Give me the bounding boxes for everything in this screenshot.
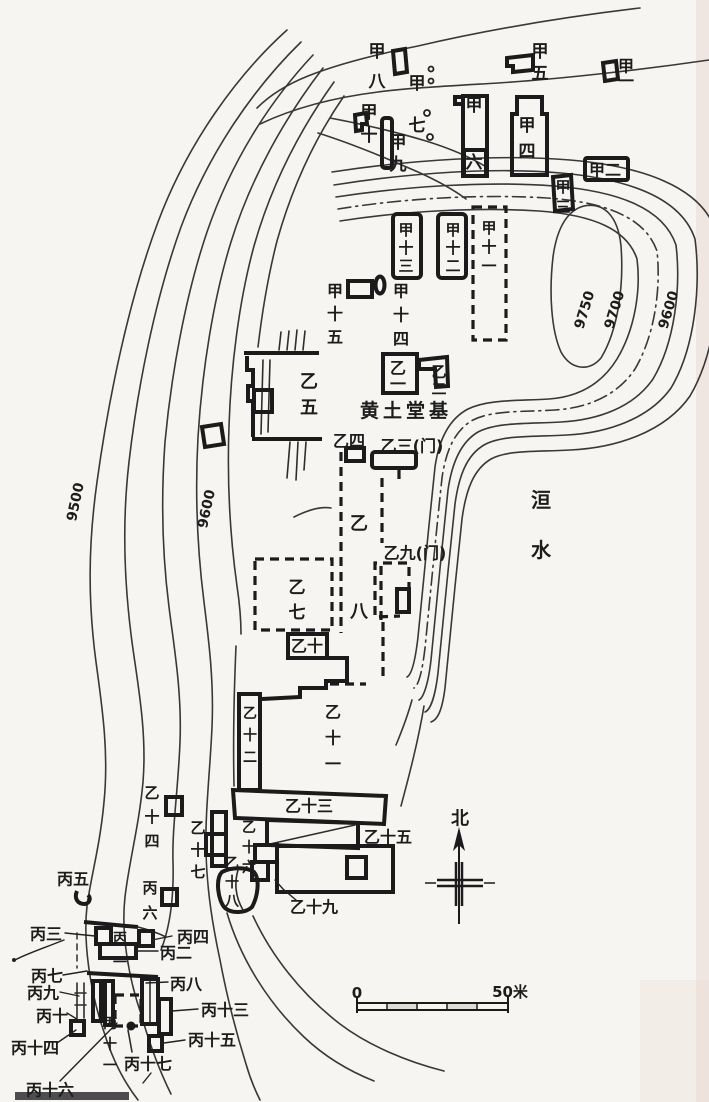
hatch-below-yi5 [287, 442, 306, 480]
pit-circle-4 [427, 134, 433, 140]
core-label: 黄土堂基 [360, 399, 452, 422]
building-jia-8 [393, 49, 407, 74]
yi-17-label: 乙十七 [190, 819, 205, 881]
yi-19-label: 乙十九 [290, 898, 338, 917]
pit-circle-1 [429, 67, 434, 72]
yi-12-label: 乙十二 [243, 706, 257, 766]
bing-17-label: 丙十七 [124, 1055, 172, 1074]
yi-3-label: 乙三(门) [381, 437, 444, 456]
jia-6-label: 甲六 [466, 96, 483, 173]
bing-8-label: 丙八 [170, 975, 203, 994]
bing-15-label: 丙十五 [188, 1031, 236, 1050]
building-south-hall [277, 846, 393, 892]
yi-10-label: 乙十 [291, 637, 323, 656]
building-connector-1 [255, 845, 277, 862]
river-label: 洹水 [531, 488, 552, 562]
mid-arc [294, 508, 331, 517]
contour-line-left-5b [234, 646, 236, 786]
building-yi-9-solid [397, 589, 409, 612]
scan-tint-corner [640, 980, 709, 1102]
bing-6-label: 丙六 [142, 879, 157, 922]
contour-9700-label: 9700 [602, 289, 629, 331]
scale-start-label: 0 [352, 984, 362, 1002]
yi-8-label: 乙八 [350, 514, 369, 623]
building-yi-15-diagonal [270, 825, 355, 844]
scale-bar [357, 997, 508, 1013]
yi-16-label: 乙十六 [242, 820, 256, 876]
building-jia-1 [603, 61, 618, 81]
leader-bing-7 [63, 971, 87, 975]
scale-bar-segment-fill-1 [387, 1004, 417, 1009]
jia-1-label: 甲一 [618, 57, 634, 91]
bing-link-line [128, 1030, 132, 1052]
contour-9500-label: 9500 [64, 481, 88, 523]
yi-9-label: 乙九(门) [384, 544, 447, 563]
contour-9600-east-label: 9600 [656, 289, 683, 331]
yi-1-label: 乙一 [390, 359, 406, 394]
scale-bar-segment-fill-2 [447, 1004, 477, 1009]
scale-bar-outline [357, 1003, 508, 1010]
jia-11-label: 甲十一 [481, 219, 496, 275]
yi-15-label: 乙十五 [364, 828, 412, 847]
leader-bing-17 [143, 1073, 151, 1083]
bing-1-label: 丙一 [113, 931, 127, 971]
bing-11-label: 丙十一 [103, 1016, 117, 1074]
yi-11-label: 乙十一 [325, 703, 341, 774]
bing-5-label: 丙五 [57, 870, 89, 889]
leader-bing-13 [172, 1009, 198, 1011]
bing-9-label: 丙九 [27, 984, 59, 1003]
jia-8-label: 甲八 [369, 42, 387, 92]
building-yi-17-square [206, 834, 226, 855]
building-bing-4-square [139, 931, 153, 946]
bottom-curve-2 [253, 916, 444, 1071]
terrace-line-top-1 [257, 8, 640, 108]
yi-2-label: 乙二 [431, 363, 446, 398]
contour-9750-label: 9750 [572, 289, 599, 331]
bing-16-label: 丙十六 [26, 1081, 74, 1100]
compass [425, 827, 495, 924]
north-label: 北 [451, 809, 469, 830]
yi-14-label: 乙十四 [144, 784, 159, 850]
jia-2-label: 甲二 [589, 161, 621, 180]
building-yi-14-square [166, 797, 182, 815]
hatch-inside-yi5 [261, 360, 270, 434]
contour-line-left-2 [124, 42, 301, 1094]
building-jia-4 [512, 97, 547, 175]
contour-line-left-5 [228, 82, 334, 634]
yi-13-label: 乙十三 [285, 797, 333, 816]
jar-feature [376, 277, 385, 294]
building-south-hall-inner [347, 857, 366, 878]
scale-end-label: 50米 [492, 983, 529, 1001]
jia-12-label: 甲十二 [445, 221, 460, 275]
leader-bing-3 [65, 933, 95, 936]
building-bing-9-bar [93, 981, 101, 1021]
jia-3-label: 甲三 [555, 178, 570, 216]
building-bing-15-square [149, 1036, 162, 1051]
bank-tail-1 [396, 700, 412, 745]
jia-13-label: 甲十三 [398, 221, 413, 275]
yi-4-label: 乙四 [333, 432, 365, 451]
building-bing-13-bar [159, 999, 171, 1034]
bing-hatch-bar [75, 983, 86, 1018]
building-yi-16-strip [212, 812, 226, 866]
leader-bing-8 [146, 982, 168, 983]
building-west-square [202, 424, 224, 447]
pit-circle-2 [429, 79, 434, 84]
contour-9600-west-label: 9600 [195, 488, 219, 530]
bing-14-label: 丙十四 [11, 1039, 59, 1058]
building-yi-11-north-edge [262, 658, 347, 699]
scan-tint-right [696, 0, 709, 1102]
site-map: 甲八甲七甲五甲一甲十甲九甲六甲四甲二甲三甲十三甲十二甲十一甲十五甲十四乙一乙二黄… [0, 0, 709, 1102]
jia-7-label: 甲七 [409, 74, 426, 136]
building-bing-3-square [96, 928, 111, 944]
bing-10-label: 丙十 [36, 1007, 68, 1026]
building-bing-6-square [162, 889, 177, 905]
yi-7-label: 乙七 [289, 578, 306, 623]
leader-bing-3-dot [12, 958, 16, 962]
jia-15-label: 甲十五 [327, 282, 343, 347]
building-jia-5 [507, 55, 533, 72]
jia-14-label: 甲十四 [393, 282, 409, 349]
bing-mid-wall [87, 973, 158, 977]
jia-4-label: 甲四 [519, 116, 536, 162]
yi-18-label: 乙十八 [224, 856, 240, 910]
site-plan-page: 甲八甲七甲五甲一甲十甲九甲六甲四甲二甲三甲十三甲十二甲十一甲十五甲十四乙一乙二黄… [0, 0, 709, 1102]
bing-13-label: 丙十三 [201, 1001, 249, 1020]
yi-5-label: 乙五 [300, 372, 318, 419]
building-jia-15 [348, 281, 372, 297]
bank-tail-2 [401, 706, 424, 806]
building-bing-5-hook [76, 891, 90, 904]
hatch-above-yi5 [279, 330, 305, 350]
bing-dot-feature [127, 1022, 136, 1031]
leader-bing-15 [164, 1040, 185, 1043]
bing-3-label: 丙三 [30, 925, 62, 944]
bing-2-label: 丙二 [160, 944, 192, 963]
